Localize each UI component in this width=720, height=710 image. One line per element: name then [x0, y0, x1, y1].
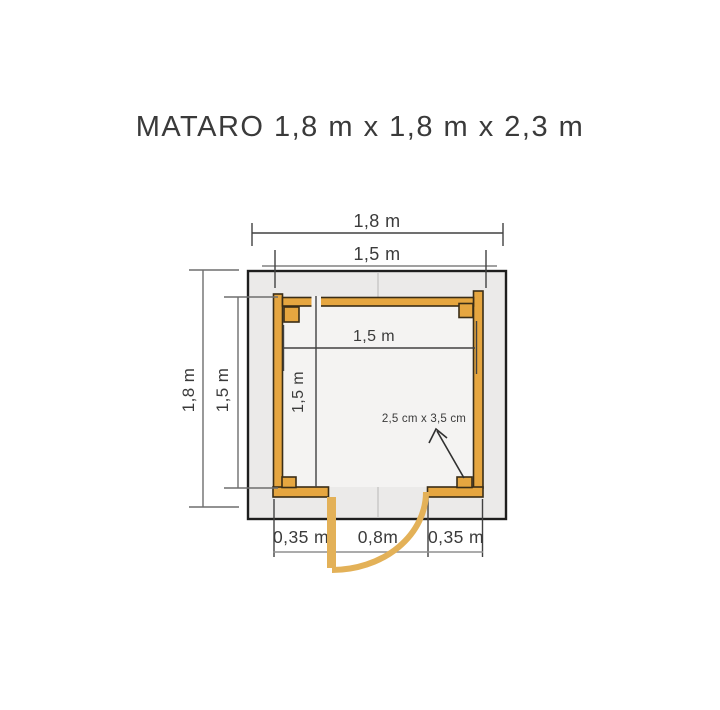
- wall-right: [474, 291, 484, 488]
- dim-label-door-width: 0,8m: [358, 527, 399, 547]
- dim-label-door-left: 0,35 m: [273, 527, 329, 547]
- corner-post-bottom-right: [457, 477, 472, 488]
- post-size-label: 2,5 cm x 3,5 cm: [382, 413, 466, 425]
- dim-label-wall-depth: 1,5 m: [213, 368, 232, 413]
- dim-label-inner-width: 1,5 m: [353, 328, 395, 345]
- dim-label-inner-depth: 1,5 m: [290, 371, 307, 413]
- floor-plan-svg: 1,8 m 1,5 m 1,8 m 1,5 m 1,5 m: [0, 0, 720, 710]
- corner-post-top-left: [284, 307, 299, 322]
- dim-label-door-right: 0,35 m: [428, 527, 484, 547]
- corner-post-bottom-left: [282, 477, 296, 488]
- wall-left: [274, 294, 283, 488]
- dim-label-roof-depth: 1,8 m: [179, 368, 198, 413]
- dim-top-outer: 1,8 m: [252, 211, 503, 246]
- corner-post-top-right: [459, 304, 473, 318]
- door-leaf: [327, 497, 336, 568]
- wall-bottom-right: [428, 487, 484, 497]
- shed-dimension-diagram: MATARO 1,8 m x 1,8 m x 2,3 m 1,8 m: [0, 0, 720, 710]
- wall-bottom-left: [273, 487, 329, 497]
- dim-label-wall-width: 1,5 m: [353, 244, 400, 264]
- wall-top: [283, 298, 474, 307]
- dim-label-roof-width: 1,8 m: [353, 211, 400, 231]
